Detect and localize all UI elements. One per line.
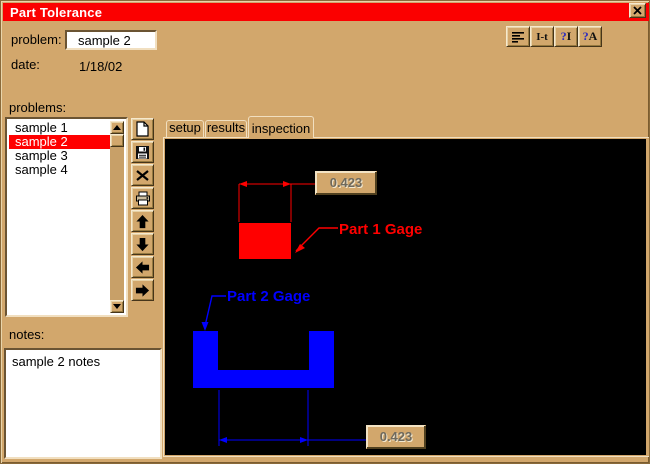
problems-list: sample 1 sample 2 sample 3 sample 4 xyxy=(9,121,110,313)
length-tolerance-button[interactable]: I-t xyxy=(530,26,554,47)
problem-label: problem: xyxy=(11,32,62,47)
notes-lines-button[interactable] xyxy=(506,26,530,47)
printer-icon xyxy=(135,191,151,206)
up-arrow-icon xyxy=(135,214,150,229)
date-label: date: xyxy=(11,57,40,72)
part1-dimension xyxy=(239,181,315,222)
help-all-button[interactable]: ?A xyxy=(578,26,602,47)
inspection-canvas[interactable]: 0.423 0.423 Part 1 Gage Part 2 Gage 0 xyxy=(165,139,646,455)
date-value: 1/18/02 xyxy=(79,59,122,74)
scroll-down-button[interactable] xyxy=(110,300,124,313)
help-item-button[interactable]: ?I xyxy=(554,26,578,47)
move-up-button[interactable] xyxy=(131,210,154,232)
window-title: Part Tolerance xyxy=(3,5,102,20)
list-item[interactable]: sample 4 xyxy=(9,163,110,177)
part1-gage-shape[interactable] xyxy=(239,223,291,259)
close-icon xyxy=(633,6,642,15)
save-problem-button[interactable] xyxy=(131,141,154,163)
move-left-button[interactable] xyxy=(131,256,154,278)
notes-label: notes: xyxy=(9,327,44,342)
help-all-letter: A xyxy=(589,29,598,44)
move-right-button[interactable] xyxy=(131,279,154,301)
help-item-letter: I xyxy=(567,29,572,44)
problems-listbox: sample 1 sample 2 sample 3 sample 4 xyxy=(5,117,128,317)
tab-inspection[interactable]: inspection xyxy=(248,116,314,138)
list-item[interactable]: sample 1 xyxy=(9,121,110,135)
delete-problem-button[interactable] xyxy=(131,164,154,186)
notes-textarea[interactable]: sample 2 notes xyxy=(4,348,162,459)
titlebar: Part Tolerance xyxy=(3,3,649,21)
dim-label-top: 0.423 0.423 xyxy=(315,171,377,195)
new-document-icon xyxy=(135,121,150,137)
part-tolerance-window: Part Tolerance problem: date: 1/18/02 I-… xyxy=(0,0,650,464)
delete-x-icon xyxy=(135,169,150,182)
right-arrow-icon xyxy=(135,283,150,298)
dim-arrow-left-icon xyxy=(239,181,247,187)
dim-arrow-right-icon xyxy=(300,437,308,443)
dim-arrow-right-icon xyxy=(283,181,291,187)
top-toolbar: I-t ?I ?A xyxy=(506,26,602,47)
dim-label-bottom: 0.423 0.423 xyxy=(366,425,426,449)
part2-gage-shape[interactable] xyxy=(193,331,334,388)
text-lines-icon xyxy=(511,30,525,43)
part1-gage-label: Part 1 Gage xyxy=(339,221,422,238)
list-item-selected[interactable]: sample 2 xyxy=(9,135,110,149)
scroll-up-button[interactable] xyxy=(110,121,124,134)
listbox-scrollbar[interactable] xyxy=(110,121,124,313)
dim-arrow-left-icon xyxy=(219,437,227,443)
scrollbar-thumb[interactable] xyxy=(110,134,124,147)
part2-gage-label: Part 2 Gage xyxy=(227,288,310,305)
dim-top-value: 0.423 xyxy=(330,175,363,190)
part2-callout: Part 2 Gage xyxy=(202,288,311,331)
tab-results[interactable]: results xyxy=(205,120,247,137)
move-down-button[interactable] xyxy=(131,233,154,255)
down-triangle-icon xyxy=(113,304,121,309)
part1-callout: Part 1 Gage xyxy=(295,221,422,253)
tab-setup[interactable]: setup xyxy=(166,120,204,137)
list-item[interactable]: sample 3 xyxy=(9,149,110,163)
part2-dimension xyxy=(219,390,366,446)
save-floppy-icon xyxy=(135,145,150,160)
scrollbar-track[interactable] xyxy=(110,147,124,300)
problems-label: problems: xyxy=(9,100,66,115)
print-button[interactable] xyxy=(131,187,154,209)
close-button[interactable] xyxy=(629,3,646,18)
side-button-column xyxy=(131,118,154,301)
problem-input[interactable] xyxy=(65,30,157,50)
down-arrow-icon xyxy=(135,237,150,252)
length-tolerance-label: I-t xyxy=(536,31,548,43)
up-triangle-icon xyxy=(113,125,121,130)
new-problem-button[interactable] xyxy=(131,118,154,140)
leader-arrow-icon xyxy=(295,244,305,253)
dim-bottom-value: 0.423 xyxy=(380,429,413,444)
left-arrow-icon xyxy=(135,260,150,275)
leader-arrow-icon xyxy=(202,322,209,331)
